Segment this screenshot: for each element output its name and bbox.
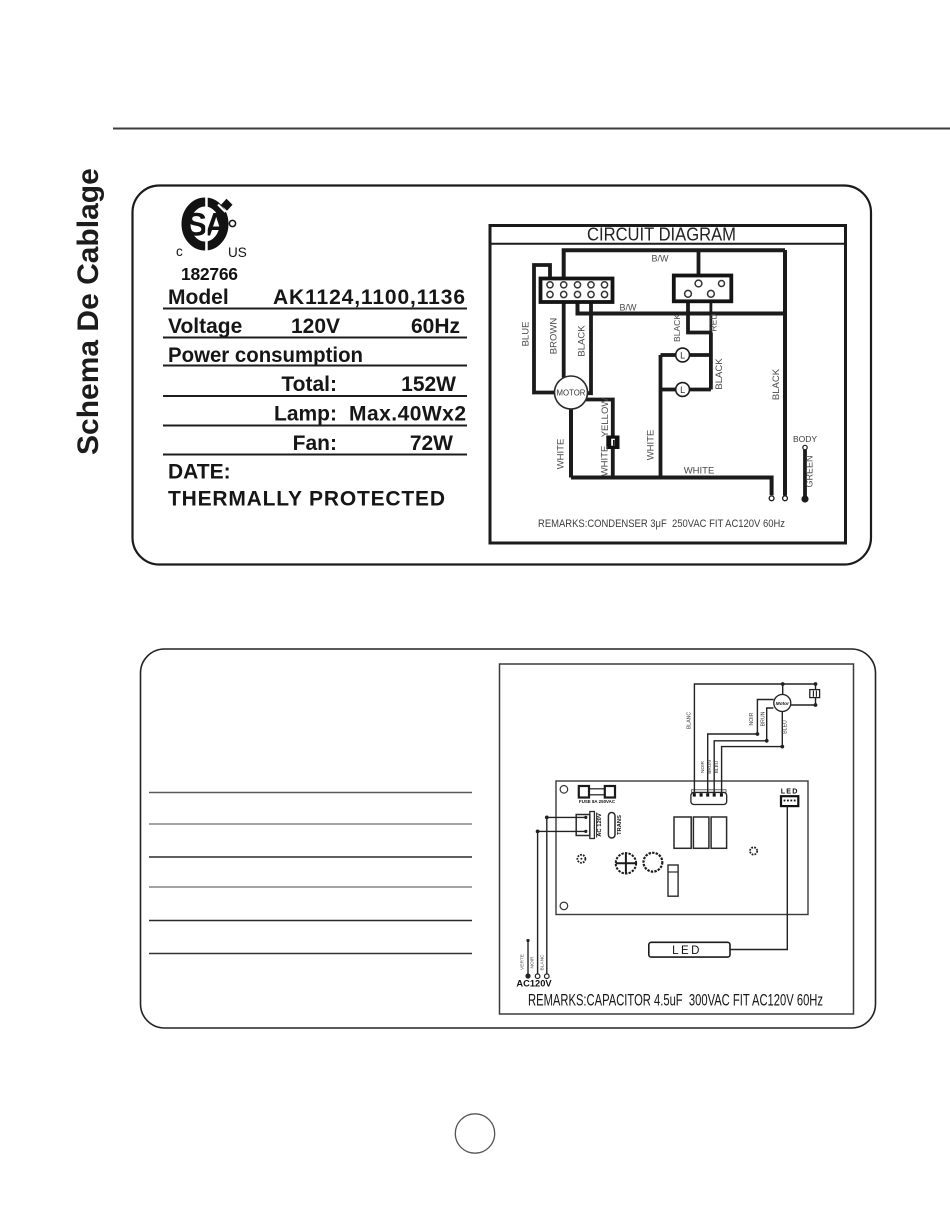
svg-text:TRANS: TRANS xyxy=(617,815,623,835)
svg-text:Voltage: Voltage xyxy=(168,315,242,338)
svg-text:B/W: B/W xyxy=(652,254,670,264)
svg-text:BROWN: BROWN xyxy=(549,318,560,355)
svg-text:WHITE: WHITE xyxy=(600,446,611,477)
svg-text:BLACK: BLACK xyxy=(771,368,782,400)
svg-text:LED: LED xyxy=(781,787,799,796)
svg-text:L: L xyxy=(680,385,685,395)
svg-text:BODY: BODY xyxy=(793,434,817,444)
svg-text:BLUE: BLUE xyxy=(521,322,532,347)
svg-text:REMARKS:CAPACITOR 4.5uF 300VA: REMARKS:CAPACITOR 4.5uF 300VAC FIT AC120… xyxy=(528,992,823,1010)
svg-text:WHITE: WHITE xyxy=(646,430,657,461)
svg-text:72W: 72W xyxy=(410,432,453,455)
svg-text:DATE:: DATE: xyxy=(168,461,231,484)
svg-text:WHITE: WHITE xyxy=(684,466,715,477)
svg-text:BLANC: BLANC xyxy=(540,954,546,971)
svg-text:Model: Model xyxy=(168,286,229,309)
svg-text:BLANC: BLANC xyxy=(686,712,692,730)
svg-text:VERTE: VERTE xyxy=(520,954,526,970)
svg-text:BRUN: BRUN xyxy=(707,760,713,774)
svg-text:182766: 182766 xyxy=(181,264,238,284)
svg-text:Motor: Motor xyxy=(776,701,790,707)
svg-text:YELLOW: YELLOW xyxy=(600,398,611,438)
svg-text:60Hz: 60Hz xyxy=(411,315,460,338)
svg-text:US: US xyxy=(228,245,247,260)
svg-text:Total:: Total: xyxy=(281,373,337,396)
svg-text:THERMALLY PROTECTED: THERMALLY PROTECTED xyxy=(168,488,445,511)
svg-text:REMARKS:CONDENSER 3μF 250VAC: REMARKS:CONDENSER 3μF 250VAC FIT AC120V … xyxy=(538,518,785,530)
svg-text:AC120V: AC120V xyxy=(516,979,552,989)
svg-text:Power consumption: Power consumption xyxy=(168,344,363,367)
svg-text:NOIR: NOIR xyxy=(530,956,536,969)
svg-text:BLACK: BLACK xyxy=(672,314,682,342)
svg-text:BRUN: BRUN xyxy=(761,711,767,726)
svg-text:BLEU: BLEU xyxy=(783,720,789,734)
svg-text:WHITE: WHITE xyxy=(556,439,567,470)
svg-text:LED: LED xyxy=(672,945,702,957)
svg-text:120V: 120V xyxy=(291,315,340,338)
svg-text:MOTOR: MOTOR xyxy=(557,389,586,398)
svg-text:NOIR: NOIR xyxy=(749,712,755,725)
svg-text:Lamp:: Lamp: xyxy=(274,403,337,426)
svg-text:BLACK: BLACK xyxy=(577,325,588,357)
svg-text:NOIR: NOIR xyxy=(700,760,706,773)
svg-text:AK1124,1100,1136: AK1124,1100,1136 xyxy=(273,286,465,309)
svg-text:CIRCUIT DIAGRAM: CIRCUIT DIAGRAM xyxy=(587,224,736,245)
svg-text:c: c xyxy=(176,244,183,259)
svg-text:BLEU: BLEU xyxy=(714,760,720,773)
svg-text:B/W: B/W xyxy=(620,303,638,313)
svg-text:Fan:: Fan: xyxy=(293,432,337,455)
svg-text:RED: RED xyxy=(709,314,719,332)
svg-text:AC 120V: AC 120V xyxy=(597,813,603,837)
svg-text:FUSE 8A 250VAC: FUSE 8A 250VAC xyxy=(579,799,616,804)
svg-text:Max.40Wx2: Max.40Wx2 xyxy=(349,403,466,426)
svg-text:GREEN: GREEN xyxy=(805,455,815,487)
svg-text:Schema De Cablage: Schema De Cablage xyxy=(72,168,105,455)
svg-text:152W: 152W xyxy=(401,373,456,396)
svg-text:BLACK: BLACK xyxy=(714,358,725,390)
svg-text:L: L xyxy=(680,350,685,360)
